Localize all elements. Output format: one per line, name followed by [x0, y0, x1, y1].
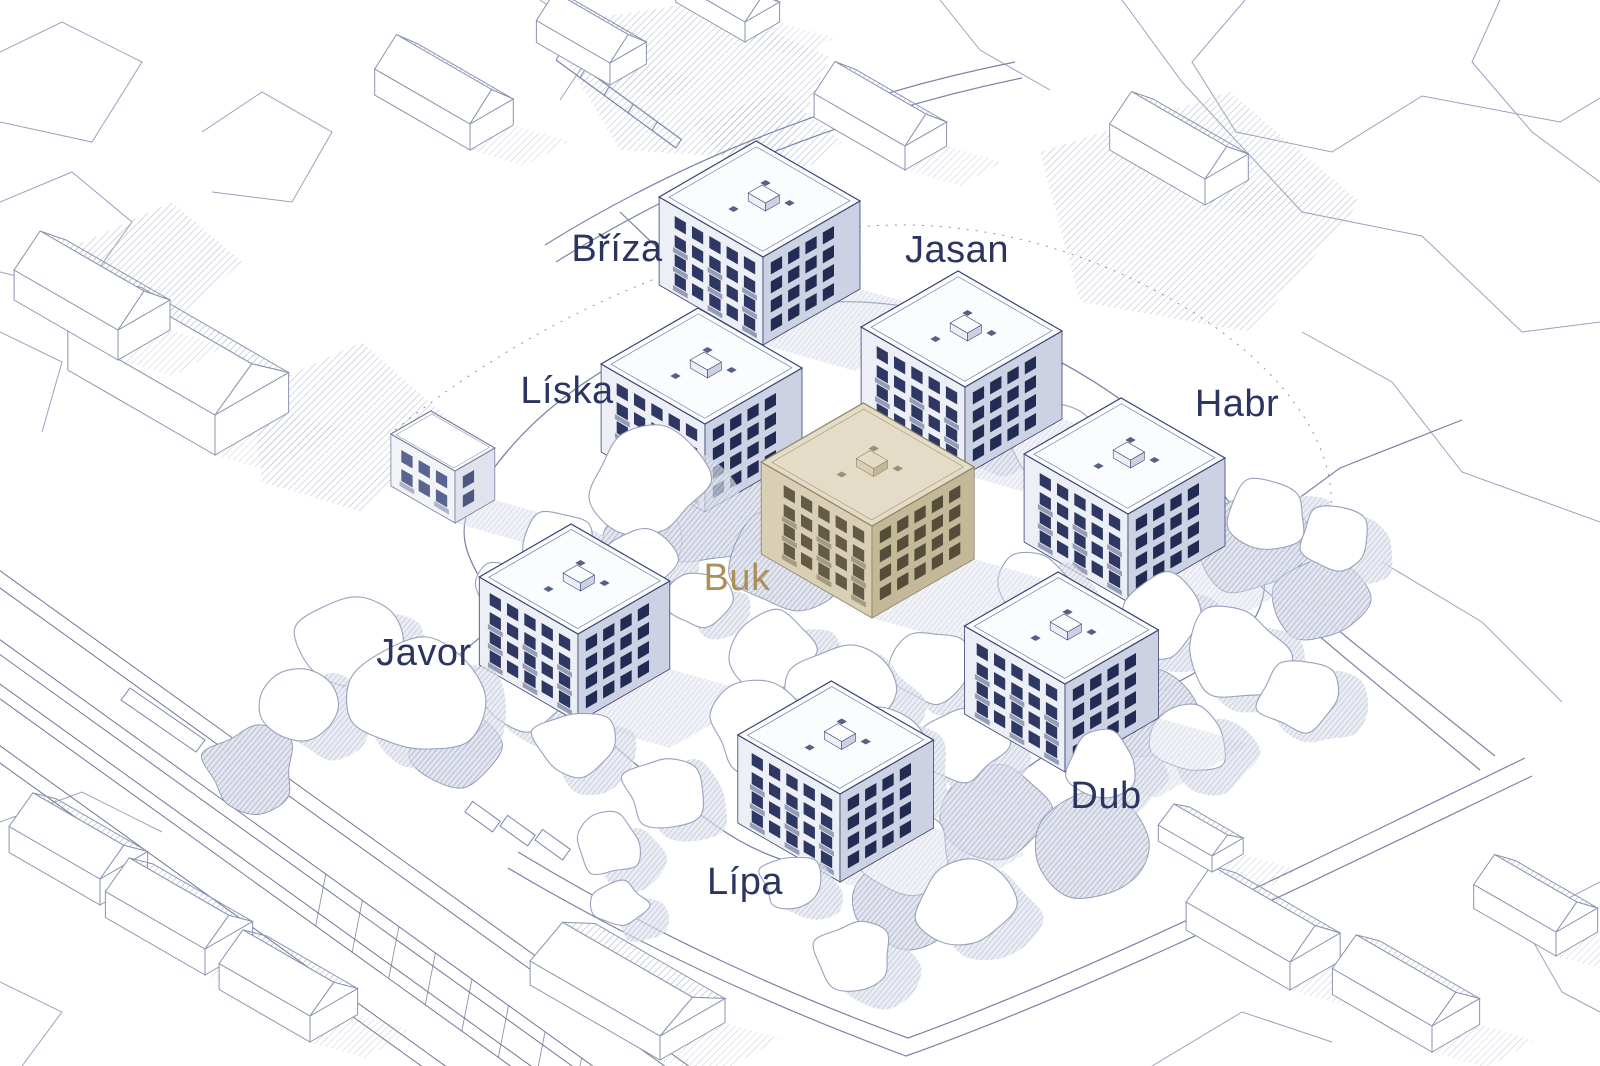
tree-crown — [621, 759, 703, 828]
label-jasan[interactable]: Jasan — [905, 229, 1009, 271]
tree-crown — [813, 921, 889, 991]
label-habr[interactable]: Habr — [1195, 383, 1279, 425]
context-house — [530, 922, 780, 1066]
label-buk[interactable]: Buk — [704, 557, 771, 599]
context-house — [219, 930, 413, 1058]
tree — [1256, 661, 1368, 743]
context-house — [375, 35, 569, 167]
tram-tie — [316, 874, 326, 926]
tree — [915, 859, 1043, 960]
tram-tie — [389, 927, 399, 979]
parking-marking — [535, 829, 570, 860]
context-house — [814, 62, 1002, 187]
terrain-contour-line — [0, 22, 142, 142]
site-plan-canvas: Bříza Jasan Líska Habr Buk Javor Dub Líp… — [0, 0, 1600, 1066]
tram-tie — [498, 1006, 508, 1058]
context-house — [1332, 935, 1534, 1066]
terrain-contour-line — [0, 982, 62, 1066]
tree-crown — [1227, 478, 1304, 549]
traffic-island — [121, 688, 205, 752]
terrain-contour-line — [1152, 1012, 1332, 1066]
tram-tie — [462, 979, 472, 1031]
label-javor[interactable]: Javor — [376, 632, 471, 674]
context-house — [1158, 804, 1298, 888]
tram-tie — [571, 1058, 581, 1066]
tram-tie — [425, 953, 435, 1005]
tree-crown — [577, 811, 640, 874]
tram-tie — [535, 1032, 545, 1066]
label-liska[interactable]: Líska — [520, 370, 614, 412]
terrain-contour-line — [202, 92, 332, 202]
terrain-contour-line — [1472, 0, 1600, 182]
tram-tie — [352, 900, 362, 952]
site-plan-svg: Bříza Jasan Líska Habr Buk Javor Dub Líp… — [0, 0, 1600, 1066]
label-lipa[interactable]: Lípa — [707, 861, 783, 903]
context-house — [1474, 855, 1600, 973]
terrain-contour-line — [940, 0, 1050, 90]
parking-marking — [500, 815, 535, 846]
terrain-contour-line — [0, 332, 62, 432]
parking-marking — [465, 801, 500, 832]
label-briza[interactable]: Bříza — [571, 228, 663, 270]
existing-canopy — [201, 725, 292, 815]
terrain-contour-line — [1382, 562, 1562, 702]
terrain-contour-line — [1302, 332, 1600, 522]
label-dub[interactable]: Dub — [1070, 775, 1141, 817]
